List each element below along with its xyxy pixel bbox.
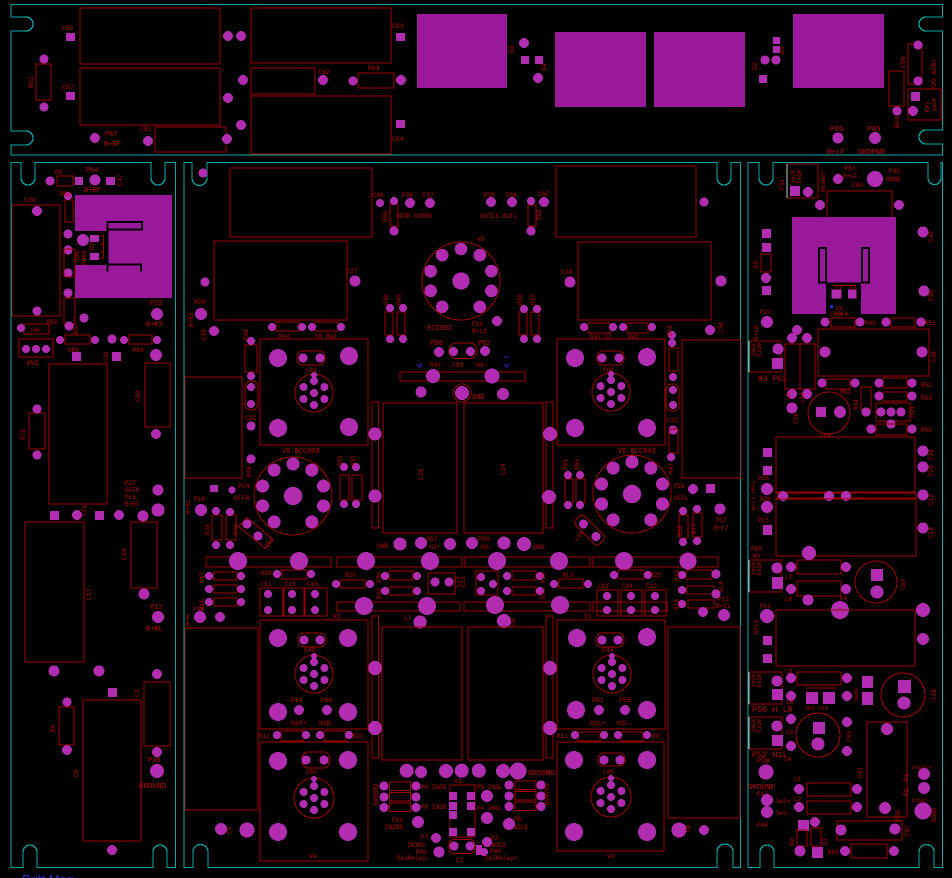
- svg-text:B+LF: B+LF: [843, 173, 858, 180]
- svg-text:C31: C31: [103, 351, 110, 362]
- svg-text:P27: P27: [125, 480, 136, 487]
- svg-text:C15: C15: [285, 581, 296, 588]
- svg-text:R29: R29: [540, 572, 547, 583]
- svg-text:C36: C36: [928, 449, 935, 460]
- svg-text:RL4: RL4: [718, 581, 725, 592]
- svg-text:C21: C21: [81, 505, 88, 516]
- svg-text:D8: D8: [789, 837, 796, 845]
- svg-text:GGND: GGND: [886, 176, 901, 183]
- svg-text:GROUND: GROUND: [139, 783, 167, 791]
- svg-text:C42: C42: [928, 231, 935, 242]
- svg-text:B+R2: B+R2: [185, 499, 192, 514]
- svg-text:ECC802: ECC802: [427, 325, 452, 333]
- svg-text:R63: R63: [368, 65, 380, 72]
- svg-text:C48: C48: [931, 689, 938, 700]
- svg-text:P21: P21: [760, 309, 771, 316]
- svg-text:side: side: [756, 718, 763, 733]
- svg-text:side: side: [756, 673, 763, 688]
- svg-text:side: side: [756, 342, 763, 357]
- svg-text:P17: P17: [716, 517, 727, 524]
- svg-text:R66: R66: [382, 211, 389, 222]
- svg-text:R39: R39: [383, 294, 390, 305]
- svg-text:HUM+: HUM+: [853, 687, 860, 700]
- svg-text:R7A: R7A: [233, 524, 240, 535]
- svg-text:L10: L10: [799, 392, 806, 403]
- svg-text:P23: P23: [674, 483, 685, 490]
- svg-text:L5: L5: [785, 668, 793, 675]
- svg-text:P10: P10: [392, 817, 403, 824]
- svg-text:R41 V7: R41 V7: [590, 334, 612, 341]
- svg-text:C41: C41: [857, 767, 864, 778]
- svg-text:C6: C6: [510, 618, 517, 626]
- svg-text:P30: P30: [895, 810, 902, 821]
- svg-text:OFFR: OFFR: [125, 487, 140, 494]
- svg-text:P1: P1: [903, 773, 910, 781]
- svg-text:U2: U2: [89, 242, 96, 250]
- svg-text:Sel+: Sel+: [776, 798, 791, 805]
- svg-text:RBK4: RBK4: [81, 250, 88, 265]
- svg-text:D6: D6: [55, 169, 63, 176]
- svg-text:L4: L4: [784, 756, 792, 763]
- svg-text:C39: C39: [24, 197, 36, 204]
- svg-text:P20: P20: [194, 299, 206, 306]
- svg-text:R78: R78: [205, 524, 212, 535]
- svg-text:P12: P12: [150, 604, 163, 612]
- svg-text:R51: R51: [562, 459, 569, 470]
- svg-text:C3: C3: [134, 689, 141, 697]
- svg-text:P53: P53: [619, 697, 631, 704]
- svg-text:C35: C35: [201, 329, 208, 340]
- svg-text:jack: jack: [931, 97, 938, 112]
- svg-text:V5 ECC803: V5 ECC803: [618, 448, 656, 456]
- svg-text:R60: R60: [133, 347, 144, 354]
- svg-text:C65: C65: [538, 191, 549, 198]
- svg-text:Sel-: Sel-: [776, 810, 790, 817]
- svg-text:P37: P37: [423, 192, 434, 199]
- svg-text:R13: R13: [674, 599, 681, 610]
- svg-text:L8: L8: [785, 596, 793, 603]
- svg-text:P2: P2: [903, 788, 910, 796]
- svg-text:P4 IN1L: P4 IN1L: [477, 805, 503, 812]
- svg-text:V9: V9: [477, 236, 485, 243]
- svg-text:H3 P61: H3 P61: [758, 375, 787, 384]
- svg-text:L7: L7: [785, 574, 793, 581]
- svg-text:C10: C10: [646, 583, 657, 590]
- svg-text:C1: C1: [456, 857, 464, 864]
- svg-text:B+L3: B+L3: [472, 328, 487, 335]
- svg-text:R62: R62: [28, 76, 35, 88]
- svg-text:C44: C44: [602, 647, 614, 654]
- svg-text:C8: C8: [685, 824, 692, 832]
- svg-text:C63: C63: [392, 23, 404, 30]
- svg-text:V4: V4: [309, 853, 317, 860]
- svg-text:B+RF: B+RF: [84, 187, 101, 195]
- svg-text:R61: R61: [840, 389, 851, 396]
- svg-text:H1R-: H1R-: [319, 720, 335, 727]
- svg-text:P58: P58: [751, 546, 762, 553]
- svg-text:D5: D5: [753, 260, 760, 268]
- svg-text:RV1: RV1: [909, 406, 916, 417]
- svg-text:P24: P24: [238, 483, 250, 490]
- svg-text:H1L+: H1L+: [590, 720, 606, 727]
- svg-text:B+R3: B+R3: [146, 321, 163, 329]
- svg-text:K1: K1: [455, 778, 463, 785]
- svg-text:C14: C14: [622, 583, 633, 590]
- svg-text:V3: V3: [333, 613, 341, 620]
- svg-text:P56: P56: [321, 697, 333, 704]
- svg-text:R30: R30: [376, 572, 383, 583]
- svg-text:R64: R64: [894, 116, 901, 128]
- svg-text:C19: C19: [307, 581, 318, 588]
- svg-text:P64: P64: [86, 167, 99, 175]
- svg-text:P63: P63: [845, 165, 856, 172]
- svg-text:B+L1: B+L1: [753, 619, 760, 634]
- svg-text:R77: R77: [691, 523, 698, 534]
- svg-text:C5: C5: [73, 769, 80, 777]
- svg-text:C4: C4: [840, 595, 848, 602]
- svg-text:R4: R4: [50, 724, 57, 732]
- svg-text:R55: R55: [921, 427, 932, 434]
- svg-text:C40: C40: [852, 182, 863, 189]
- svg-text:C33: C33: [245, 415, 256, 422]
- svg-text:GND: GND: [377, 543, 389, 550]
- svg-text:P5 IN2L: P5 IN2L: [477, 784, 503, 791]
- svg-text:P48: P48: [757, 822, 768, 829]
- svg-text:C17: C17: [86, 588, 93, 600]
- svg-text:P39: P39: [889, 168, 900, 175]
- svg-text:PL1: PL1: [760, 603, 771, 610]
- svg-text:side: side: [796, 169, 803, 184]
- svg-text:P59: P59: [478, 536, 490, 543]
- svg-text:C38: C38: [931, 351, 938, 362]
- svg-text:P57: P57: [426, 536, 438, 543]
- svg-text:L25: L25: [418, 468, 425, 480]
- svg-text:C43: C43: [846, 731, 853, 742]
- svg-text:10x: 10x: [30, 327, 41, 334]
- svg-text:OUTR OUTRG: OUTR OUTRG: [396, 213, 432, 220]
- svg-text:R46: R46: [243, 329, 250, 340]
- svg-text:RV2: RV2: [27, 360, 39, 367]
- svg-text:R33: R33: [677, 525, 684, 536]
- svg-text:D3: D3: [509, 45, 516, 53]
- svg-text:L7: L7: [404, 615, 412, 622]
- svg-text:LRBK4: LRBK4: [830, 311, 848, 318]
- svg-text:C13: C13: [121, 548, 128, 560]
- svg-text:R10: R10: [352, 733, 363, 740]
- svg-text:C45: C45: [603, 769, 614, 776]
- svg-text:R19: R19: [674, 570, 681, 581]
- svg-text:B+L7: B+L7: [714, 525, 729, 532]
- svg-text:R53: R53: [921, 395, 932, 402]
- svg-text:IN2RG: IN2RG: [385, 824, 403, 831]
- svg-text:L2: L2: [794, 796, 802, 803]
- svg-text:L6: L6: [786, 699, 794, 706]
- svg-text:L1: L1: [794, 776, 802, 783]
- svg-text:R31: R31: [337, 455, 344, 466]
- svg-text:P51: P51: [592, 697, 604, 704]
- svg-text:V2: V2: [607, 853, 615, 860]
- svg-text:H1L-: H1L-: [617, 720, 633, 727]
- svg-text:R12: R12: [259, 733, 270, 740]
- svg-text:P25: P25: [758, 475, 769, 482]
- svg-text:C9: C9: [226, 826, 233, 834]
- svg-text:R76: R76: [20, 429, 27, 440]
- svg-text:R11: R11: [557, 733, 568, 740]
- svg-text:B+L1: B+L1: [716, 603, 731, 610]
- svg-text:P22: P22: [150, 300, 163, 308]
- svg-text:C29: C29: [135, 390, 142, 402]
- svg-text:H2-: H2-: [481, 544, 493, 551]
- svg-text:GROUND: GROUND: [528, 770, 556, 778]
- svg-text:R20: R20: [345, 572, 356, 579]
- svg-text:B+RF: B+RF: [104, 141, 121, 149]
- svg-text:R48: R48: [246, 466, 253, 477]
- svg-text:Key: Key: [924, 101, 931, 112]
- svg-text:C67: C67: [904, 825, 911, 836]
- svg-text:R45: R45: [667, 325, 674, 336]
- svg-text:C56: C56: [900, 56, 907, 68]
- svg-text:H1R+: H1R+: [291, 720, 307, 727]
- svg-text:D7: D7: [822, 837, 829, 845]
- svg-text:OFFL: OFFL: [674, 495, 689, 502]
- svg-text:R5R7R1: R5R7R1: [544, 783, 551, 805]
- svg-text:R6R8R2: R6R8R2: [373, 783, 380, 805]
- svg-text:C11: C11: [260, 581, 271, 588]
- svg-text:C12: C12: [928, 494, 935, 505]
- svg-text:P19: P19: [472, 321, 483, 328]
- svg-text:PL5: PL5: [758, 517, 769, 524]
- svg-text:R57: R57: [73, 323, 80, 334]
- svg-text:P65: P65: [867, 126, 881, 134]
- svg-text:C50: C50: [306, 769, 317, 776]
- svg-text:GND: GND: [533, 544, 545, 551]
- svg-text:side: side: [756, 561, 763, 576]
- svg-text:C34: C34: [718, 322, 725, 333]
- svg-text:P54: P54: [291, 697, 303, 704]
- svg-text:D4: D4: [541, 63, 548, 71]
- svg-text:C52: C52: [62, 25, 74, 32]
- svg-text:R47: R47: [668, 463, 675, 474]
- svg-text:R55: R55: [574, 459, 581, 470]
- svg-text:P18: P18: [194, 496, 205, 503]
- svg-text:R40: R40: [396, 294, 403, 305]
- svg-text:R32: R32: [350, 455, 357, 466]
- svg-text:P66: P66: [830, 126, 844, 134]
- svg-text:P49: P49: [490, 848, 501, 855]
- svg-text:C62: C62: [318, 69, 330, 76]
- svg-text:Britt Mag: Britt Mag: [22, 872, 74, 878]
- svg-text:B+RL: B+RL: [184, 613, 191, 626]
- svg-text:P13: P13: [718, 596, 729, 603]
- svg-text:C18: C18: [598, 583, 609, 590]
- svg-text:PL6: PL6: [125, 494, 136, 501]
- svg-text:SelRelay-: SelRelay-: [397, 855, 429, 862]
- svg-text:P38: P38: [148, 757, 161, 765]
- svg-text:OUTLG OUTL: OUTLG OUTL: [481, 213, 517, 220]
- svg-text:Header: Header: [820, 170, 827, 192]
- svg-text:B+R3: B+R3: [188, 312, 195, 327]
- svg-text:P6: P6: [514, 816, 522, 823]
- svg-text:OFFR: OFFR: [234, 495, 250, 502]
- svg-text:H3-: H3-: [476, 362, 488, 369]
- svg-text:C66: C66: [373, 192, 384, 199]
- svg-text:C63: C63: [900, 579, 907, 590]
- svg-text:GNDPWR: GNDPWR: [858, 149, 886, 157]
- svg-text:R24: R24: [261, 570, 272, 577]
- svg-text:P60: P60: [430, 340, 443, 348]
- svg-text:P7: P7: [421, 834, 429, 841]
- svg-text:H2: H2: [753, 553, 761, 560]
- svg-text:P9 IN2R: P9 IN2R: [421, 784, 447, 791]
- svg-text:P29 ACB+: P29 ACB+: [931, 59, 938, 90]
- svg-text:D1: D1: [779, 46, 786, 54]
- svg-text:C49: C49: [304, 647, 316, 654]
- svg-text:R54: R54: [853, 399, 860, 410]
- svg-text:TP2 TP1: TP2 TP1: [805, 705, 829, 712]
- svg-text:IN1RG: IN1RG: [407, 842, 425, 849]
- svg-text:R7L: R7L: [540, 588, 547, 599]
- svg-text:R65: R65: [536, 209, 543, 220]
- svg-text:L9: L9: [785, 392, 792, 400]
- svg-text:B+R7: B+R7: [125, 501, 140, 508]
- svg-text:L24: L24: [500, 463, 507, 475]
- svg-text:H3+: H3+: [430, 362, 442, 369]
- svg-text:B+L7 OFFL: B+L7 OFFL: [750, 480, 757, 510]
- svg-text:P55 H LR: P55 H LR: [752, 705, 793, 715]
- svg-text:R38: R38: [517, 294, 524, 305]
- svg-text:R51: R51: [925, 320, 936, 327]
- svg-text:R37: R37: [530, 294, 537, 305]
- svg-text:RL9: RL9: [563, 572, 574, 579]
- svg-text:R50: R50: [60, 191, 71, 198]
- svg-text:P8 IN1R: P8 IN1R: [421, 804, 447, 811]
- svg-text:SGND: SGND: [931, 807, 938, 822]
- svg-text:V1: V1: [584, 613, 592, 620]
- svg-text:C16: C16: [928, 527, 935, 538]
- svg-text:P36: P36: [402, 192, 413, 199]
- svg-text:L3: L3: [786, 729, 794, 736]
- svg-text:P67: P67: [105, 131, 118, 139]
- svg-text:C59: C59: [452, 362, 464, 369]
- svg-text:H2+: H2+: [429, 544, 441, 551]
- svg-text:C22: C22: [460, 576, 467, 587]
- svg-text:R52: R52: [921, 382, 932, 389]
- svg-text:GND: GND: [472, 394, 485, 402]
- svg-text:B+RL: B+RL: [146, 626, 163, 634]
- svg-text:C30: C30: [928, 290, 935, 301]
- svg-text:C32: C32: [667, 417, 678, 424]
- svg-text:R49: R49: [865, 320, 876, 327]
- svg-text:R22: R22: [376, 588, 383, 599]
- svg-text:R9: R9: [652, 733, 660, 740]
- svg-text:C20: C20: [928, 465, 935, 476]
- svg-text:B+L3: B+L3: [753, 325, 760, 340]
- svg-text:C27: C27: [346, 268, 358, 275]
- svg-text:R25: R25: [650, 572, 661, 579]
- svg-text:B+LF: B+LF: [827, 149, 845, 157]
- svg-text:C51: C51: [140, 126, 152, 133]
- svg-text:R17: R17: [199, 572, 206, 583]
- svg-text:R43: R43: [628, 334, 639, 341]
- svg-text:R67: R67: [828, 849, 839, 856]
- svg-text:SelRelay+: SelRelay+: [485, 855, 518, 862]
- svg-text:C28: C28: [561, 269, 573, 276]
- svg-text:C47: C47: [117, 174, 124, 186]
- svg-text:V6 ECC803: V6 ECC803: [282, 448, 320, 456]
- svg-text:P31: P31: [779, 179, 786, 190]
- svg-text:C64: C64: [392, 136, 404, 143]
- svg-text:C57: C57: [62, 84, 74, 91]
- svg-text:C29: C29: [793, 413, 800, 424]
- svg-text:D2: D2: [752, 62, 759, 70]
- svg-text:P3: P3: [491, 835, 499, 842]
